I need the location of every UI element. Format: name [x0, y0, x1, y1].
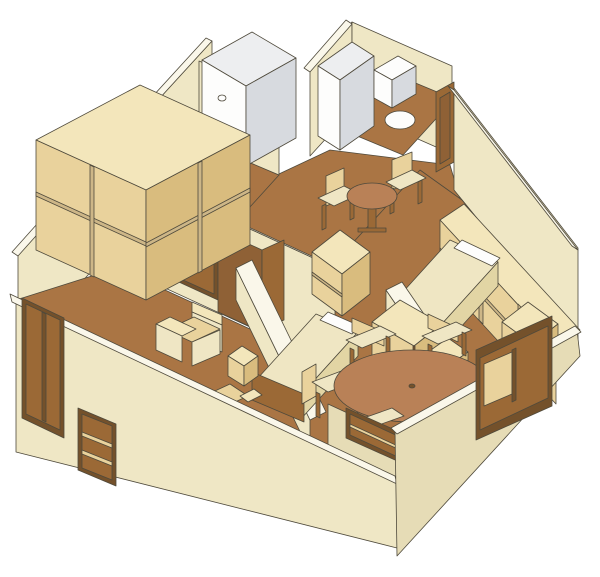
floorplan-rendering	[0, 0, 600, 577]
living-wardrobe-divider-left	[90, 165, 94, 277]
sliding-window-divider	[512, 348, 516, 402]
toilet-bowl	[385, 111, 415, 129]
coffee-table-pedestal	[368, 206, 376, 230]
shower2-left-face	[318, 66, 340, 150]
floorplan-page: 3D isometric floor plan rendering of a t…	[0, 0, 600, 577]
coffee-table-base	[358, 228, 386, 232]
dining-table-center-mark	[409, 384, 415, 388]
sliding-door-divider	[42, 312, 46, 422]
bathroom2-doorway-opening	[440, 92, 450, 164]
dining-chair3-leg1	[316, 392, 320, 418]
dining-chair2-leg2	[462, 332, 466, 356]
shower1-head	[218, 95, 226, 101]
living-window-inner	[82, 414, 112, 480]
bedroom2-chair-left-leg1	[322, 204, 326, 230]
living-wardrobe-divider-right	[198, 161, 202, 273]
bedroom2-chair-right-leg2	[418, 180, 422, 204]
floorplan-figure: 3D isometric floor plan rendering of a t…	[0, 0, 600, 577]
coffee-table-top	[347, 183, 397, 209]
